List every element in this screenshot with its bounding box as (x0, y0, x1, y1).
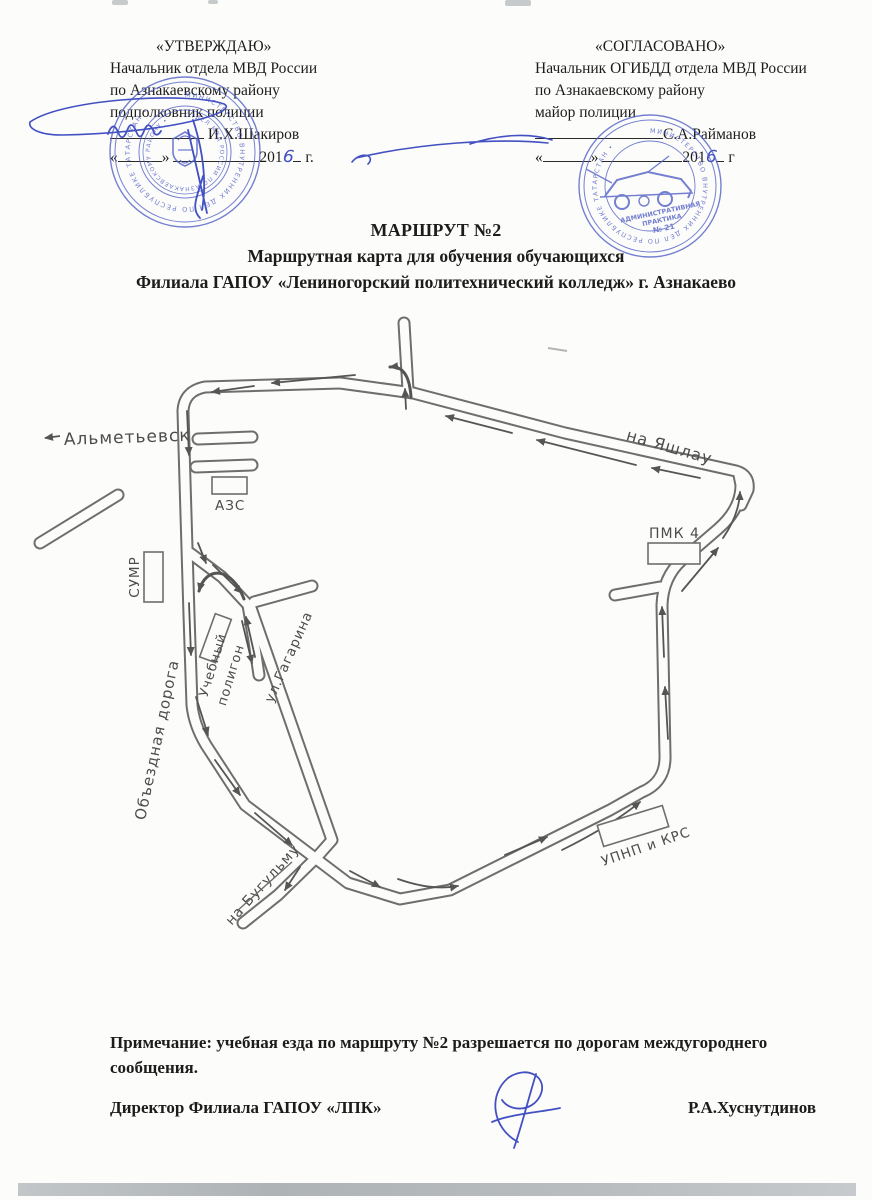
approval-right-heading: «СОГЛАСОВАНО» (535, 36, 845, 58)
building-pmk (648, 543, 700, 564)
scan-artifact (208, 0, 218, 4)
route-map: Альметьевск на Яшлау АЗС СУМР Учебный по… (0, 305, 872, 1005)
scanned-route-document: { "approval_left": { "heading": "«УТВЕРЖ… (0, 0, 872, 1200)
scan-artifact (505, 0, 531, 6)
building-upnp (597, 806, 668, 847)
building-poligon (200, 614, 232, 663)
label-obezdnaya: Объездная дорога (131, 658, 183, 822)
approval-left-signature-line: И.Х.Шакиров (110, 124, 380, 146)
label-pmk: ПМК 4 (649, 526, 700, 542)
approval-right-year: 201 (682, 149, 705, 166)
signature-raimanov (352, 135, 552, 164)
building-azs (212, 477, 247, 494)
building-sumr (144, 552, 163, 602)
label-poligon-1: Учебный (197, 631, 231, 698)
label-gagarina: ул.Гагарина (262, 609, 317, 705)
approval-right-signature-line: С.А.Райманов (535, 124, 845, 146)
label-upnp: УПНП и КРС (599, 824, 692, 869)
label-bugulma: на Бугульму (223, 841, 304, 928)
title-route-number: МАРШРУТ №2 (0, 220, 872, 241)
approval-left-line3: подполковник полиции (110, 102, 380, 124)
label-yashlau: на Яшлау (624, 425, 714, 468)
label-poligon-2: полигон (215, 643, 248, 708)
approval-left-year: 201 (259, 149, 282, 166)
approval-right-line1: Начальник ОГИБДД отдела МВД России (535, 58, 845, 80)
route-direction-arrows (187, 367, 740, 890)
handwritten-year-digit: 6 (281, 145, 295, 168)
approval-left-date-line: «» 2016 г. (110, 146, 380, 169)
label-sumr: СУМР (127, 556, 143, 597)
footer-position: Директор Филиала ГАПОУ «ЛПК» (110, 1098, 382, 1118)
title-subtitle: Маршрутная карта для обучения обучающихс… (0, 246, 872, 267)
approval-block-left: «УТВЕРЖДАЮ» Начальник отдела МВД России … (110, 36, 380, 169)
approval-right-date-line: «» 2016 г (535, 146, 845, 169)
approval-left-line1: Начальник отдела МВД России (110, 58, 380, 80)
bugulma-underline (237, 862, 292, 911)
approval-right-line3: майор полиции (535, 102, 845, 124)
road-network-cores (40, 323, 748, 923)
approval-block-right: «СОГЛАСОВАНО» Начальник ОГИБДД отдела МВ… (535, 36, 845, 169)
scanner-edge-strip (18, 1183, 856, 1196)
approval-right-name: С.А.Райманов (663, 126, 756, 143)
road-network-edges (40, 323, 748, 923)
note-text: Примечание: учебная езда по маршруту №2 … (110, 1030, 840, 1080)
approval-right-line2: по Азнакаевскому району (535, 80, 845, 102)
approval-left-heading: «УТВЕРЖДАЮ» (110, 36, 380, 58)
map-buildings (144, 477, 700, 846)
title-organization: Филиала ГАПОУ «Лениногорский политехниче… (0, 272, 872, 293)
almetyevsk-direction-arrow (45, 436, 60, 438)
footer-name: Р.А.Хуснутдинов (688, 1098, 816, 1118)
scan-mark (548, 348, 567, 351)
scan-artifact (112, 0, 128, 5)
label-azs: АЗС (215, 498, 245, 514)
label-almetyevsk: Альметьевск (63, 426, 190, 450)
handwritten-year-digit: 6 (704, 145, 718, 168)
approval-left-line2: по Азнакаевскому району (110, 80, 380, 102)
approval-left-name: И.Х.Шакиров (208, 126, 299, 143)
document-title: МАРШРУТ №2 Маршрутная карта для обучения… (0, 220, 872, 293)
